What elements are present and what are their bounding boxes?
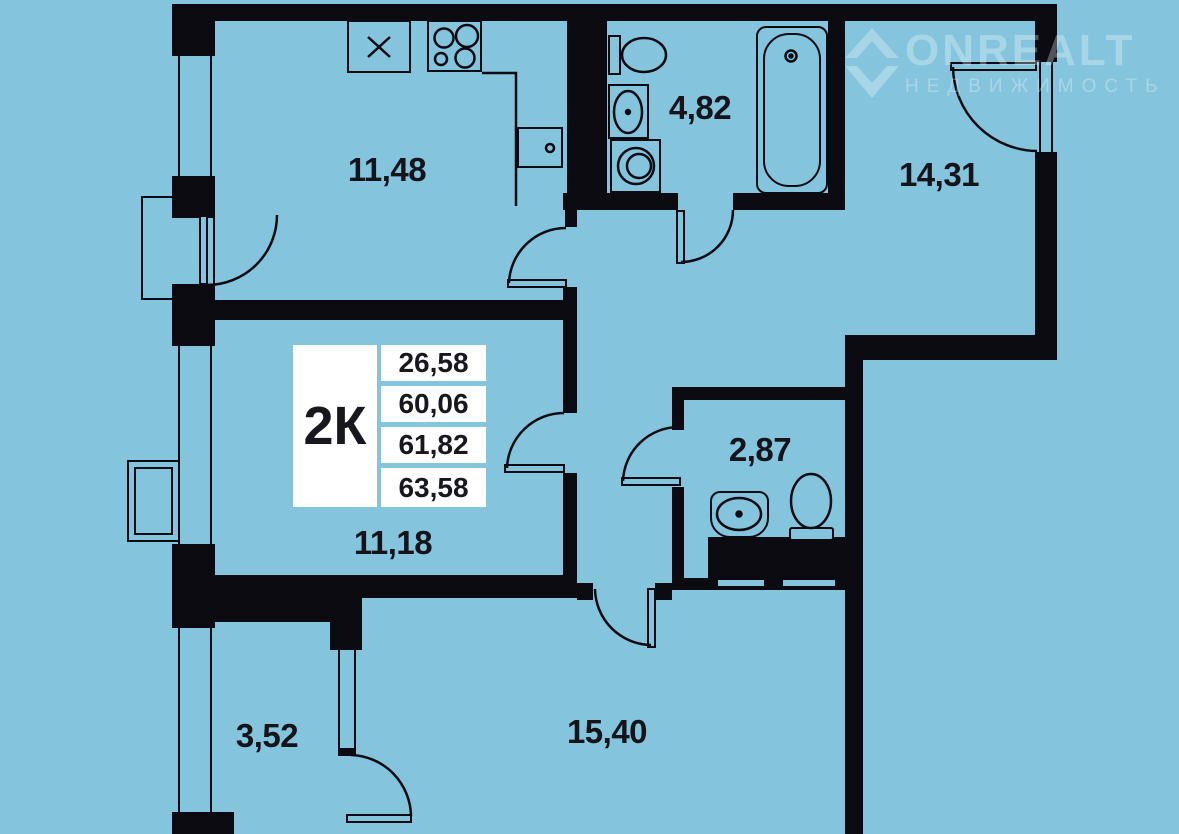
wall [172, 4, 1057, 21]
door-leaf [504, 464, 565, 473]
stove-icon [427, 20, 482, 72]
washing-machine-icon [610, 139, 661, 193]
wall [655, 583, 672, 600]
room-label-balcony: 3,52 [236, 717, 298, 755]
wc-toilet-bowl [791, 474, 831, 528]
window-kitchen [178, 56, 212, 176]
room-label-wc: 2,87 [729, 431, 791, 469]
wc-toilet-base [789, 527, 834, 541]
door-arc [351, 755, 411, 816]
onrealt-logo-icon [843, 26, 901, 108]
wall [172, 4, 215, 56]
wall [172, 575, 577, 598]
wc-washbasin-icon [710, 491, 769, 538]
kitchen-cabinet-icon [517, 127, 563, 168]
door-arc [681, 210, 733, 262]
wall [172, 598, 348, 622]
exterior-window-box-inner [134, 467, 173, 535]
door-arc [507, 413, 564, 468]
wall [577, 583, 593, 600]
door-arc [595, 589, 651, 645]
door-leaf [647, 588, 656, 648]
kitchen-counter-line [482, 73, 516, 206]
washbasin-icon [608, 84, 649, 139]
watermark-brand: ONREALT [905, 26, 1135, 76]
wall [563, 193, 678, 210]
toilet-bowl [622, 38, 666, 72]
door-leaf [346, 814, 412, 823]
floor-plan: 11,48 4,82 14,31 2,87 11,18 3,52 15,40 2… [0, 0, 1179, 834]
wall [565, 210, 577, 227]
unit-area-cell: 61,82 [381, 427, 486, 463]
unit-type-cell: 2К [293, 345, 377, 507]
room-label-bathroom: 4,82 [669, 89, 731, 127]
window-balcony [178, 628, 212, 814]
wall-notch [783, 580, 835, 586]
wall [1035, 152, 1057, 360]
door-arc [623, 427, 679, 481]
door-arc [207, 215, 277, 285]
door-arc [509, 228, 566, 283]
unit-area-cell: 63,58 [381, 468, 486, 507]
window-partition-balcony-living [338, 648, 356, 752]
wall [567, 4, 607, 210]
wall [563, 473, 577, 585]
ventilation-duct [708, 537, 847, 578]
bathtub-inner [763, 33, 821, 187]
wall [845, 335, 1057, 360]
door-leaf [676, 210, 685, 264]
watermark-subtitle: НЕДВИЖИМОСТЬ [905, 76, 1166, 98]
room-label-living: 15,40 [567, 713, 647, 751]
door-leaf [199, 215, 208, 285]
unit-area-cell: 60,06 [381, 386, 486, 422]
wall [172, 300, 577, 320]
wall [172, 176, 215, 218]
wall [845, 360, 863, 834]
door-leaf [621, 477, 681, 486]
wall [672, 487, 684, 585]
wall [672, 387, 862, 400]
toilet-tank-icon [608, 35, 621, 75]
unit-area-cell: 26,58 [381, 345, 486, 381]
window-sill-block [338, 748, 356, 756]
window-bedroom-left [178, 346, 212, 544]
room-label-bedroom-left: 11,18 [354, 524, 432, 562]
room-label-kitchen: 11,48 [348, 151, 426, 189]
wall-notch [718, 580, 764, 586]
door-leaf [507, 279, 567, 288]
kitchen-sink-icon [347, 20, 411, 73]
room-label-bedroom-right: 14,31 [899, 156, 979, 194]
window-sill-block [338, 642, 356, 650]
wall [172, 812, 234, 834]
